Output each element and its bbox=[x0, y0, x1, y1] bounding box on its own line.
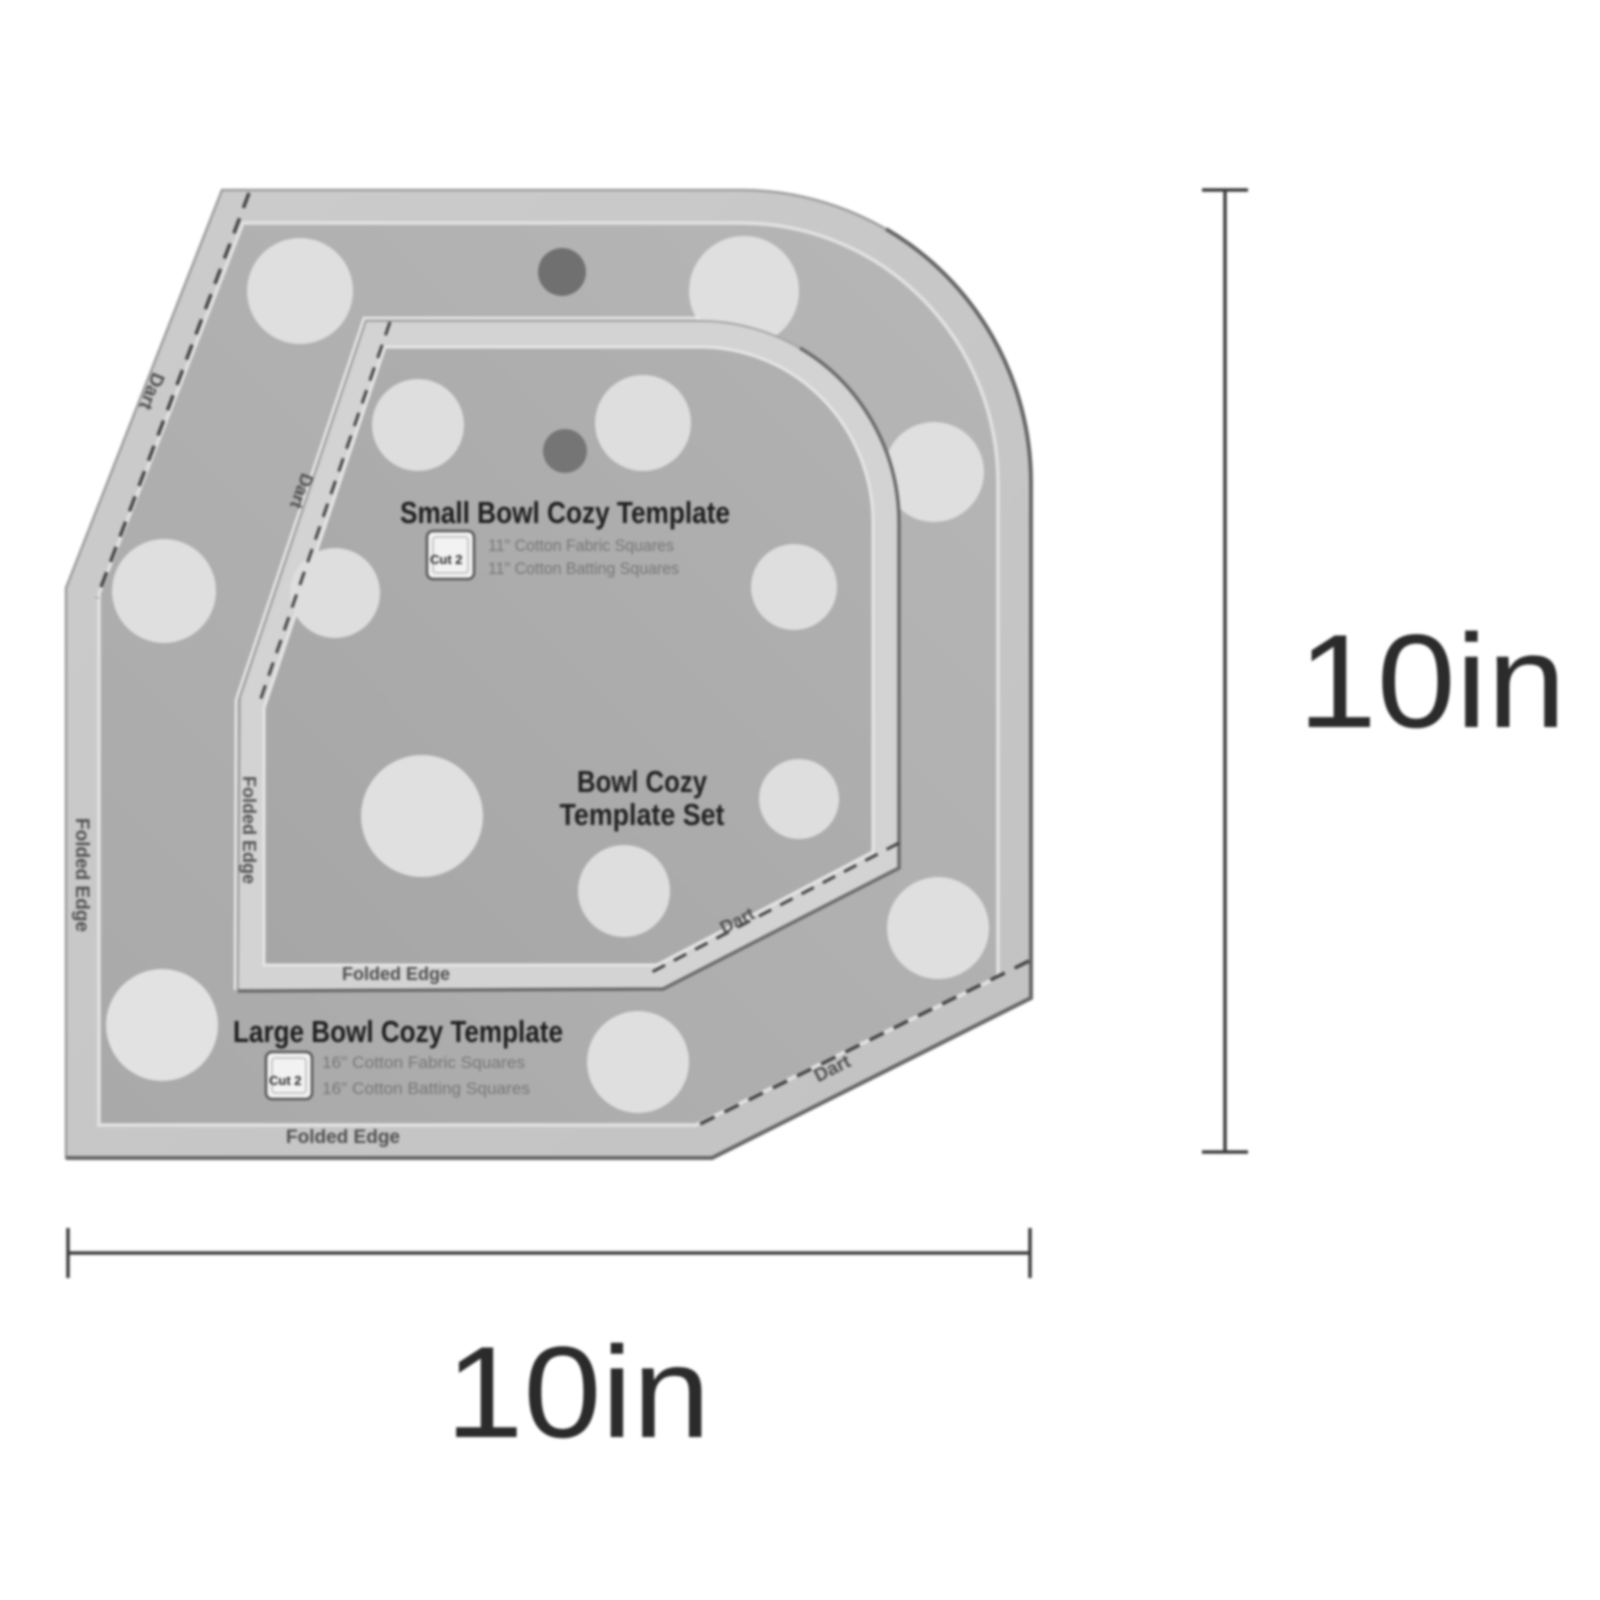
svg-text:Folded Edge: Folded Edge bbox=[71, 818, 92, 932]
svg-text:16" Cotton Fabric Squares: 16" Cotton Fabric Squares bbox=[322, 1053, 525, 1072]
svg-text:Bowl Cozy: Bowl Cozy bbox=[577, 764, 708, 799]
svg-text:Template Set: Template Set bbox=[560, 797, 725, 832]
svg-text:10in: 10in bbox=[446, 1319, 711, 1465]
svg-text:Cut 2: Cut 2 bbox=[430, 552, 463, 567]
svg-text:Cut 2: Cut 2 bbox=[269, 1073, 302, 1088]
svg-text:Small Bowl Cozy Template: Small Bowl Cozy Template bbox=[400, 495, 730, 530]
svg-text:11" Cotton Batting Squares: 11" Cotton Batting Squares bbox=[488, 559, 679, 578]
svg-text:Folded Edge: Folded Edge bbox=[286, 1127, 400, 1148]
svg-text:10in: 10in bbox=[1298, 608, 1566, 756]
svg-text:16" Cotton Batting Squares: 16" Cotton Batting Squares bbox=[322, 1079, 530, 1098]
svg-text:11" Cotton Fabric Squares: 11" Cotton Fabric Squares bbox=[488, 536, 674, 555]
svg-text:Large Bowl Cozy Template: Large Bowl Cozy Template bbox=[233, 1014, 563, 1049]
svg-text:Folded Edge: Folded Edge bbox=[239, 776, 259, 884]
svg-text:Folded Edge: Folded Edge bbox=[342, 964, 450, 984]
